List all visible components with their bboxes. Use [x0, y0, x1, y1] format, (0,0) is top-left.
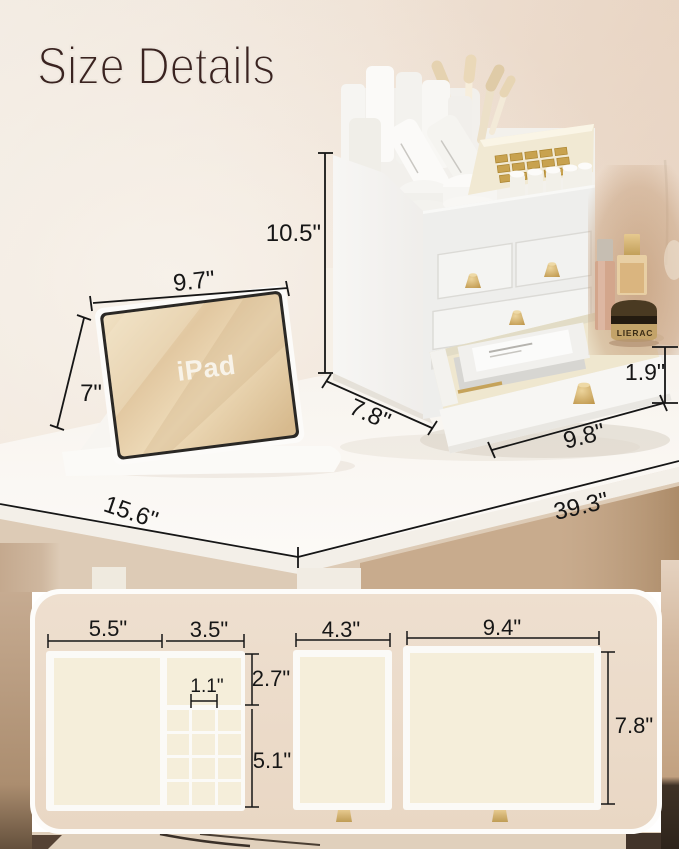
svg-text:1.9": 1.9": [625, 359, 665, 385]
svg-text:9.4": 9.4": [483, 615, 521, 640]
svg-text:3.5": 3.5": [190, 617, 228, 642]
svg-text:1.1": 1.1": [190, 676, 223, 697]
svg-text:5.1": 5.1": [253, 748, 291, 773]
svg-text:10.5": 10.5": [266, 220, 321, 247]
svg-text:5.5": 5.5": [89, 616, 127, 641]
svg-text:LIERAC: LIERAC: [617, 328, 653, 338]
svg-text:9.7": 9.7": [172, 266, 216, 297]
svg-text:7.8": 7.8": [615, 713, 653, 738]
svg-text:Size Details: Size Details: [37, 37, 275, 96]
svg-text:7": 7": [80, 380, 102, 407]
svg-text:4.3": 4.3": [322, 617, 360, 642]
svg-text:2.7": 2.7": [252, 666, 290, 691]
